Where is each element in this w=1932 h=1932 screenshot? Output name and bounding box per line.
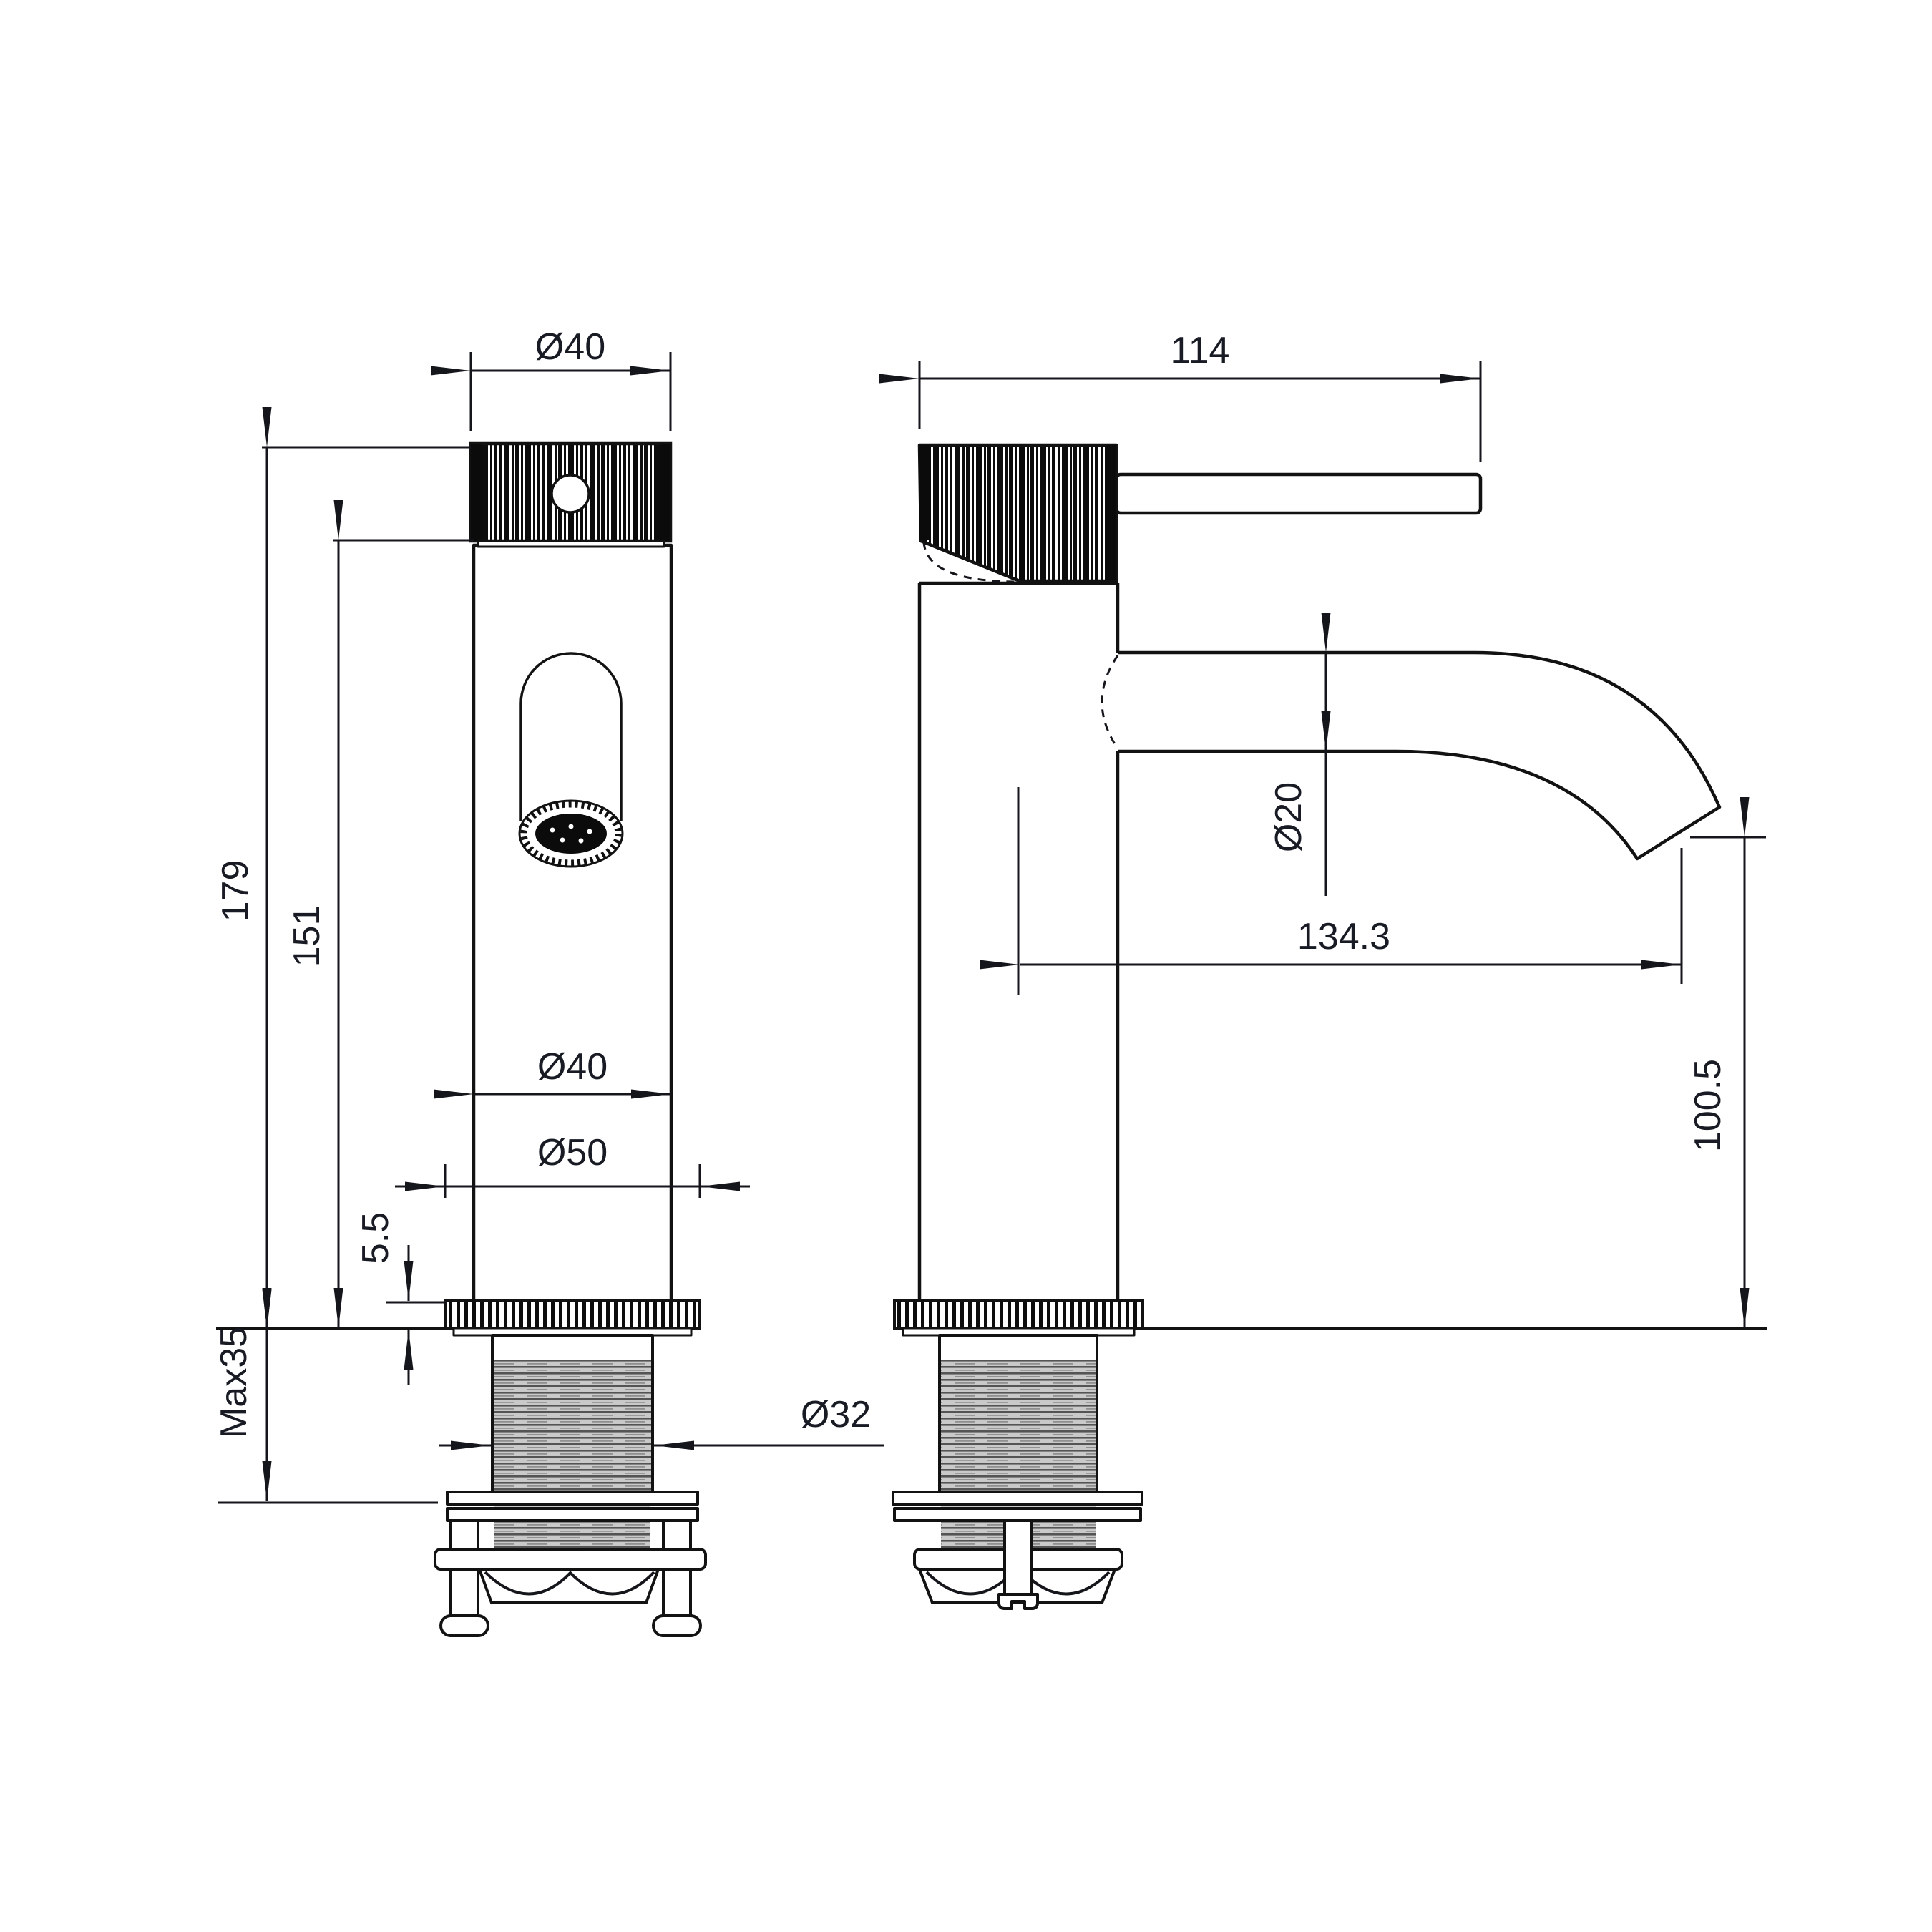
dim-handle-diameter: Ø40 [471,326,670,431]
dim-handle-depth: 114 [919,330,1480,462]
side-threaded-shank [940,1335,1097,1492]
side-base-ring [894,1301,1143,1335]
spout [1118,653,1719,859]
drawing-canvas: Ø40 179 151 Ø40 Ø50 5.5 [0,0,1932,1932]
lever-handle [1116,474,1480,513]
washer-plate-2 [447,1508,698,1521]
dim-label-body-diameter: Ø40 [537,1046,608,1088]
dim-body-height: 151 [286,540,474,1328]
front-handle [471,444,670,547]
bracket-bar [435,1549,706,1569]
dim-label-shank-thread-diameter: Ø32 [801,1394,871,1435]
dim-label-spout-reach: 134.3 [1297,916,1390,957]
front-view: Ø40 179 151 Ø40 Ø50 5.5 [213,326,884,1636]
front-body [474,545,671,1301]
dim-spout-outlet-height: 100.5 [1687,837,1766,1328]
handle-neck [478,541,664,547]
dim-label-total-height: 179 [215,860,256,922]
center-fixing-stud [999,1521,1038,1609]
front-base-ring [445,1301,700,1335]
dim-label-body-height: 151 [286,905,328,967]
washer-plate-1 [447,1492,698,1504]
technical-drawing: Ø40 179 151 Ø40 Ø50 5.5 [0,0,1932,1932]
front-mounting-hardware [435,1492,706,1636]
washer-plate-2-side [894,1508,1141,1521]
dim-base-ring-height: 5.5 [355,1212,447,1385]
dim-label-base-diameter: Ø50 [537,1132,608,1174]
front-threaded-shank [492,1335,653,1492]
dim-label-spout-tube-diameter: Ø20 [1268,782,1309,852]
dim-label-max-mounting-thickness: Max35 [213,1327,255,1438]
dim-label-base-ring-height: 5.5 [355,1212,396,1264]
dim-label-spout-outlet-height: 100.5 [1687,1059,1729,1152]
side-handle [919,445,1116,582]
washer-plate-1-side [893,1492,1142,1504]
stud-foot-right [653,1616,701,1636]
dim-max-mounting-thickness: Max35 [213,1327,438,1503]
dim-label-handle-depth: 114 [1171,330,1230,371]
aerator [519,801,623,867]
side-mounting-hardware [893,1492,1142,1609]
handle-pin-hole [552,475,589,512]
mounting-nut [479,1569,658,1603]
stud-foot-left [441,1616,488,1636]
stud-slotted-cap [999,1594,1038,1609]
dim-label-handle-diameter: Ø40 [535,326,605,368]
dim-total-height: 179 [215,447,471,1328]
side-view: 114 Ø20 134.3 100.5 [893,330,1767,1609]
